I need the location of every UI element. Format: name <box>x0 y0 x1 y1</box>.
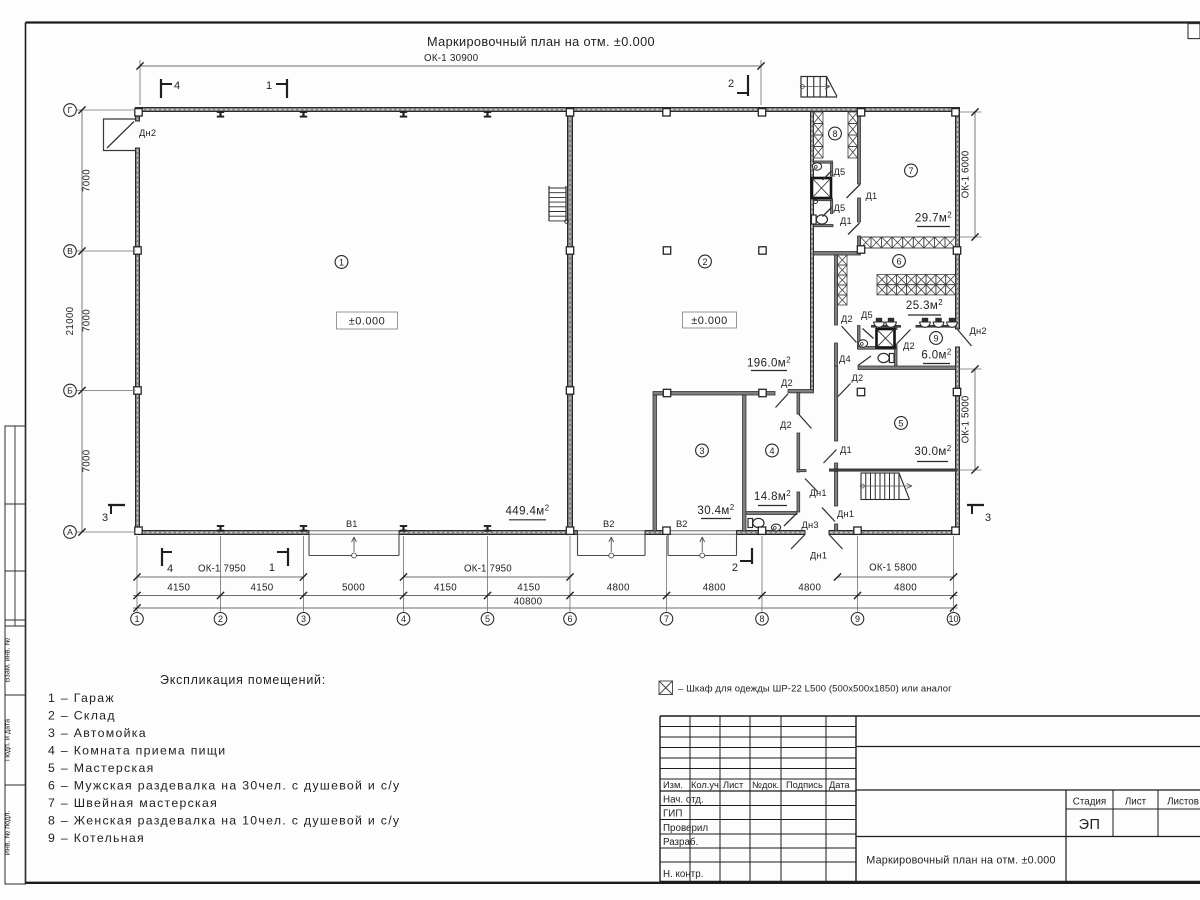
svg-text:2: 2 <box>702 257 707 267</box>
svg-text:5: 5 <box>485 614 490 624</box>
svg-text:30.4м2: 30.4м2 <box>697 503 734 517</box>
svg-text:Г: Г <box>68 105 73 115</box>
svg-text:3: 3 <box>301 614 306 624</box>
svg-text:25.3м2: 25.3м2 <box>906 298 943 312</box>
svg-text:ОК-1 7950: ОК-1 7950 <box>198 564 246 575</box>
svg-text:3: 3 <box>985 512 991 524</box>
svg-text:4150: 4150 <box>434 583 457 594</box>
svg-text:3: 3 <box>102 512 108 524</box>
svg-text:±0.000: ±0.000 <box>691 315 728 327</box>
svg-text:Дн1: Дн1 <box>810 551 827 561</box>
svg-text:Дн2: Дн2 <box>970 326 987 336</box>
svg-text:ОК-1 5000: ОК-1 5000 <box>961 395 972 443</box>
svg-text:7 – Швейная мастерская: 7 – Швейная мастерская <box>48 796 218 810</box>
svg-text:Подп. и дата: Подп. и дата <box>3 719 12 761</box>
svg-text:1: 1 <box>134 614 139 624</box>
svg-text:21000: 21000 <box>65 306 76 335</box>
svg-text:Дата: Дата <box>829 780 850 790</box>
svg-text:2: 2 <box>732 562 738 574</box>
svg-text:Маркировочный план на отм. ±0.: Маркировочный план на отм. ±0.000 <box>866 855 1055 867</box>
svg-text:4150: 4150 <box>167 583 190 594</box>
svg-text:Д2: Д2 <box>780 420 792 430</box>
svg-text:40800: 40800 <box>514 597 543 608</box>
svg-text:ОК-1 6000: ОК-1 6000 <box>961 150 972 198</box>
svg-text:Взам. инв. №: Взам. инв. № <box>3 637 12 682</box>
svg-text:10: 10 <box>948 614 958 624</box>
svg-text:7000: 7000 <box>82 449 93 472</box>
svg-text:ОК-1 7950: ОК-1 7950 <box>464 564 512 575</box>
svg-text:449.4м2: 449.4м2 <box>506 504 550 518</box>
svg-text:Стадия: Стадия <box>1073 797 1106 808</box>
svg-text:29.7м2: 29.7м2 <box>915 211 952 225</box>
svg-text:ОК-1 30900: ОК-1 30900 <box>424 53 479 64</box>
svg-text:30.0м2: 30.0м2 <box>914 444 951 458</box>
svg-text:Д2: Д2 <box>903 341 915 351</box>
svg-text:7: 7 <box>908 166 913 176</box>
svg-text:ЭП: ЭП <box>1079 817 1101 833</box>
svg-text:Маркировочный план на отм. ±0.: Маркировочный план на отм. ±0.000 <box>427 34 655 49</box>
svg-text:4: 4 <box>769 446 774 456</box>
svg-text:14.8м2: 14.8м2 <box>754 489 791 503</box>
svg-text:4: 4 <box>174 80 180 92</box>
svg-text:Лист: Лист <box>1125 797 1147 808</box>
svg-text:7000: 7000 <box>82 169 93 192</box>
svg-text:9 – Котельная: 9 – Котельная <box>48 831 145 845</box>
svg-text:5: 5 <box>898 418 903 428</box>
svg-text:4800: 4800 <box>703 583 726 594</box>
svg-text:А: А <box>67 527 73 537</box>
svg-text:4 – Комната приема пищи: 4 – Комната приема пищи <box>48 744 226 758</box>
svg-text:Д2: Д2 <box>781 378 793 388</box>
svg-text:Дн1: Дн1 <box>837 509 854 519</box>
svg-text:196.0м2: 196.0м2 <box>747 356 791 370</box>
svg-text:9: 9 <box>855 614 860 624</box>
svg-text:Д1: Д1 <box>866 191 878 201</box>
svg-text:Дн3: Дн3 <box>802 520 819 530</box>
svg-text:4800: 4800 <box>798 583 821 594</box>
svg-text:4800: 4800 <box>607 583 630 594</box>
svg-text:Д1: Д1 <box>840 216 852 226</box>
svg-text:6: 6 <box>567 614 572 624</box>
svg-text:Д5: Д5 <box>861 310 873 320</box>
svg-text:Д4: Д4 <box>839 354 851 364</box>
svg-text:– Шкаф для одежды ШР-22 L500 (: – Шкаф для одежды ШР-22 L500 (500х500х18… <box>678 684 952 695</box>
svg-text:1 – Гараж: 1 – Гараж <box>48 691 115 705</box>
svg-text:ГИП: ГИП <box>663 809 682 820</box>
svg-text:В: В <box>67 246 73 256</box>
svg-text:№док.: №док. <box>752 780 779 790</box>
svg-text:±0.000: ±0.000 <box>349 316 386 328</box>
svg-text:Д2: Д2 <box>841 314 853 324</box>
svg-text:Д5: Д5 <box>834 203 846 213</box>
svg-text:В1: В1 <box>346 519 357 529</box>
svg-text:Нач. отд.: Нач. отд. <box>663 795 704 806</box>
svg-text:ОК-1 5800: ОК-1 5800 <box>869 563 917 574</box>
svg-text:6: 6 <box>896 256 901 266</box>
svg-text:4: 4 <box>167 563 173 575</box>
svg-text:Д2: Д2 <box>852 373 864 383</box>
svg-text:1: 1 <box>339 257 344 267</box>
svg-text:4: 4 <box>401 614 406 624</box>
svg-text:4150: 4150 <box>517 583 540 594</box>
svg-text:5000: 5000 <box>342 583 365 594</box>
svg-text:7: 7 <box>664 614 669 624</box>
svg-text:2: 2 <box>728 78 734 90</box>
svg-text:Подпись: Подпись <box>786 780 823 790</box>
svg-text:Проверил: Проверил <box>663 823 708 834</box>
svg-text:1: 1 <box>269 562 275 574</box>
svg-text:Листов: Листов <box>1167 797 1199 808</box>
svg-text:Инв. № подл.: Инв. № подл. <box>3 811 12 856</box>
svg-text:8 – Женская раздевалка на 10че: 8 – Женская раздевалка на 10чел. с душев… <box>48 814 400 828</box>
svg-text:Н. контр.: Н. контр. <box>663 869 703 880</box>
svg-text:Кол.уч: Кол.уч <box>691 780 719 790</box>
svg-text:6 – Мужская раздевалка на 30че: 6 – Мужская раздевалка на 30чел. с душев… <box>48 779 400 793</box>
svg-text:Д1: Д1 <box>840 445 852 455</box>
svg-text:4800: 4800 <box>894 583 917 594</box>
svg-text:2: 2 <box>218 614 223 624</box>
svg-text:1: 1 <box>266 80 272 92</box>
svg-text:8: 8 <box>759 614 764 624</box>
svg-text:8: 8 <box>832 129 837 139</box>
svg-text:В2: В2 <box>603 519 614 529</box>
svg-text:9: 9 <box>933 333 938 343</box>
svg-text:7000: 7000 <box>82 309 93 332</box>
svg-text:3 – Автомойка: 3 – Автомойка <box>48 726 147 740</box>
svg-text:2 – Склад: 2 – Склад <box>48 709 116 723</box>
svg-text:Разраб.: Разраб. <box>663 837 698 848</box>
svg-text:Дн1: Дн1 <box>810 488 827 498</box>
svg-text:Д5: Д5 <box>834 167 846 177</box>
svg-text:Экспликация помещений:: Экспликация помещений: <box>160 672 326 687</box>
svg-text:В2: В2 <box>676 519 687 529</box>
svg-text:4150: 4150 <box>251 583 274 594</box>
svg-text:Лист: Лист <box>723 780 744 790</box>
svg-text:3: 3 <box>699 446 704 456</box>
svg-text:Изм.: Изм. <box>663 780 683 790</box>
svg-text:Дн2: Дн2 <box>139 128 156 138</box>
svg-text:5 – Мастерская: 5 – Мастерская <box>48 761 155 775</box>
svg-text:Б: Б <box>67 386 73 396</box>
